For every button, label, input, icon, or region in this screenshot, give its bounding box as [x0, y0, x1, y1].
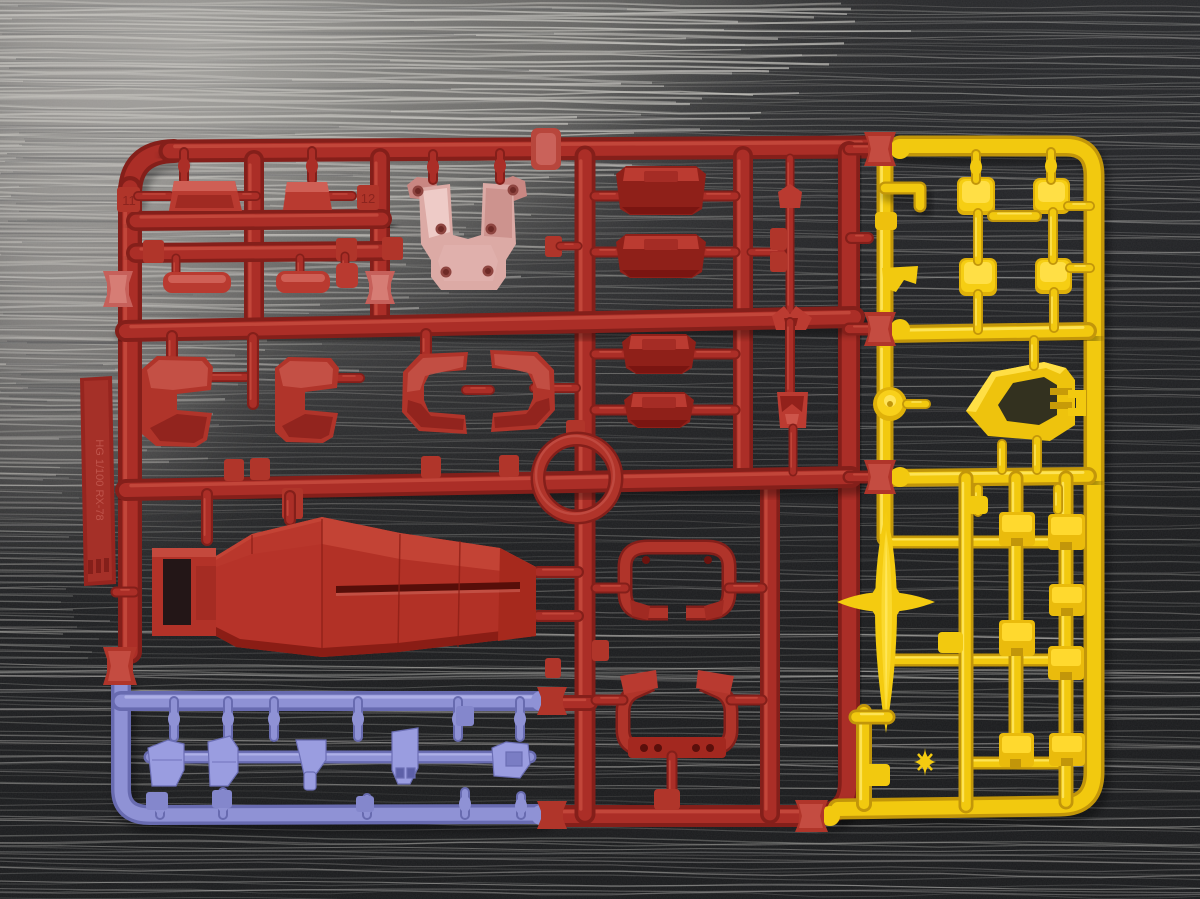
svg-text:12: 12 — [361, 191, 375, 206]
svg-text:HG 1/100 RX-78: HG 1/100 RX-78 — [93, 439, 105, 520]
